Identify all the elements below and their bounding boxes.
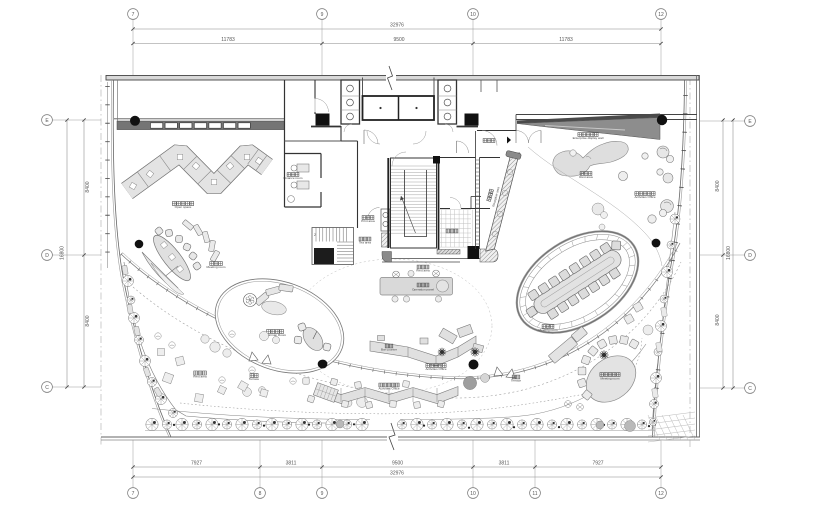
svg-text:Rest area: Rest area xyxy=(193,374,207,378)
svg-text:10: 10 xyxy=(470,491,476,497)
svg-text:D: D xyxy=(748,253,752,259)
svg-text:32976: 32976 xyxy=(390,23,404,29)
svg-text:Rest area: Rest area xyxy=(416,269,430,273)
svg-text:12: 12 xyxy=(658,491,664,497)
svg-text:7: 7 xyxy=(132,491,135,497)
svg-text:Meeting room: Meeting room xyxy=(207,265,226,269)
svg-text:7927: 7927 xyxy=(592,461,603,467)
svg-text:16800: 16800 xyxy=(60,246,66,260)
svg-text:Bar counter: Bar counter xyxy=(381,348,397,352)
svg-text:9500: 9500 xyxy=(392,461,403,467)
svg-text:Open space: Open space xyxy=(175,205,192,209)
svg-text:8400: 8400 xyxy=(715,180,721,191)
svg-text:7: 7 xyxy=(132,12,135,18)
svg-text:Activities Office: Activities Office xyxy=(425,367,446,371)
svg-text:2: 2 xyxy=(314,233,316,237)
svg-text:Print area: Print area xyxy=(361,219,375,223)
svg-text:C: C xyxy=(748,386,752,392)
svg-text:Operation panel: Operation panel xyxy=(412,288,434,292)
svg-text:Activities Office: Activities Office xyxy=(378,387,399,391)
svg-text:3811: 3811 xyxy=(499,461,510,467)
svg-text:11783: 11783 xyxy=(221,37,235,43)
svg-text:8400: 8400 xyxy=(715,314,721,325)
svg-text:Rest area: Rest area xyxy=(579,175,593,179)
svg-text:Activities Office: Activities Office xyxy=(634,195,655,199)
svg-text:10: 10 xyxy=(470,12,476,18)
svg-text:Terrace: Terrace xyxy=(511,379,522,383)
svg-text:Tea area: Tea area xyxy=(359,241,371,245)
svg-text:11783: 11783 xyxy=(559,37,573,43)
svg-text:8400: 8400 xyxy=(85,181,91,192)
svg-text:7927: 7927 xyxy=(191,461,202,467)
svg-text:12: 12 xyxy=(658,12,664,18)
svg-text:9: 9 xyxy=(321,491,324,497)
svg-text:8: 8 xyxy=(259,491,262,497)
svg-text:16800: 16800 xyxy=(726,246,732,260)
svg-text:Terrace: Terrace xyxy=(249,377,260,381)
svg-text:11: 11 xyxy=(532,491,537,497)
svg-text:C: C xyxy=(45,385,49,391)
svg-text:Meeting room: Meeting room xyxy=(539,328,558,332)
svg-text:Finance room: Finance room xyxy=(284,176,303,180)
svg-text:9500: 9500 xyxy=(393,37,404,43)
svg-text:Meeting room: Meeting room xyxy=(601,377,620,381)
svg-text:D: D xyxy=(45,253,49,259)
svg-text:9: 9 xyxy=(321,12,324,18)
svg-text:32976: 32976 xyxy=(390,471,404,477)
svg-text:3811: 3811 xyxy=(286,461,297,467)
svg-text:Enterprise display wall: Enterprise display wall xyxy=(573,136,604,140)
svg-text:8400: 8400 xyxy=(85,315,91,326)
